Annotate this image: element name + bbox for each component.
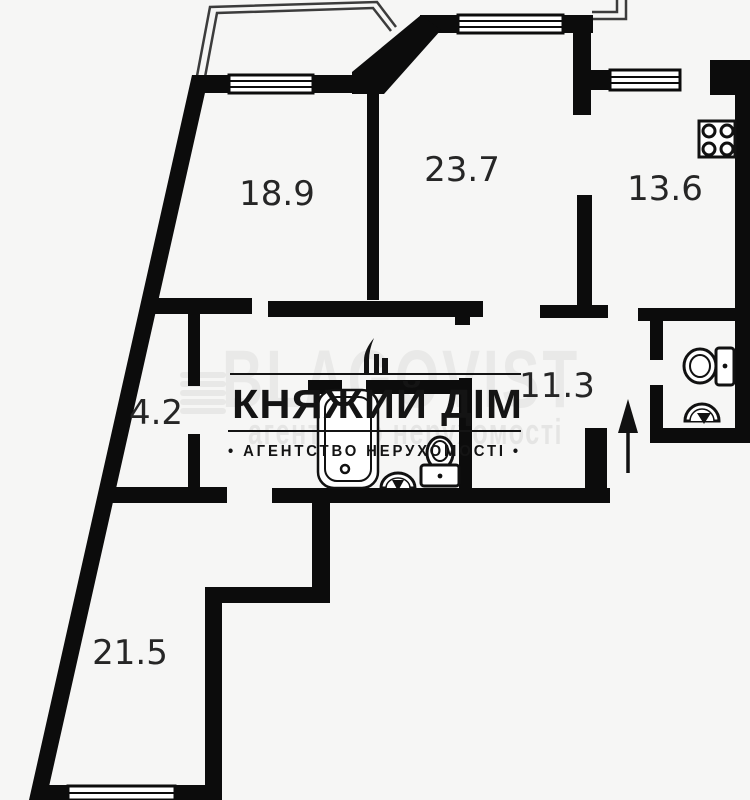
- wall-closet-bottom: [100, 487, 227, 503]
- room-label-4-2: 4.2: [129, 393, 183, 433]
- stove-icon: [699, 121, 735, 157]
- window-room237: [458, 15, 563, 33]
- tagline-text: • АГЕНТСТВО НЕРУХОМОСТІ •: [228, 443, 521, 460]
- floor-plan-page: BLAGOVIST агентство нерухомості: [0, 0, 750, 800]
- wall-wc-left-lower: [650, 385, 663, 428]
- wall-kitchen-divider-tbar: [540, 305, 608, 318]
- wall-hall-right: [585, 428, 607, 503]
- window-kitchen: [610, 70, 680, 90]
- wall-kitchen-divider-lower: [577, 195, 592, 305]
- wall-room-divider: [367, 90, 379, 300]
- room-label-11-3: 11.3: [519, 366, 595, 406]
- bathroom-sink-icon: [381, 473, 415, 491]
- window-room215: [68, 786, 175, 800]
- balcony-top-right-outer: [592, 0, 626, 19]
- wc-toilet-icon: [684, 348, 734, 385]
- wall-closet-right-upper: [188, 310, 200, 386]
- entrance-arrow-icon: [618, 399, 638, 473]
- wall-room215-right: [205, 590, 222, 800]
- wall-hall-top-stub: [455, 313, 470, 325]
- wc-sink-icon: [685, 404, 719, 424]
- wall-diagonal: [352, 15, 441, 94]
- room-label-13-6: 13.6: [627, 169, 703, 209]
- wall-step-horizontal: [205, 587, 330, 603]
- wall-kitchen-divider-upper: [573, 33, 591, 115]
- wall-top-right-corner: [710, 60, 750, 95]
- wall-hall-bottom: [272, 488, 610, 503]
- brand-text: КНЯЖИЙ ДІМ: [232, 381, 523, 427]
- wall-closet-right-lower: [188, 434, 200, 490]
- wall-hall-top-middle: [268, 301, 483, 317]
- room-label-23-7: 23.7: [424, 150, 500, 190]
- window-room189: [229, 75, 313, 93]
- blagovist-logo-stripes-icon: [180, 372, 226, 414]
- balcony-top-right-inner: [592, 0, 617, 12]
- wall-step-vertical: [312, 503, 330, 603]
- wall-right-outer: [735, 60, 750, 443]
- floor-plan: BLAGOVIST агентство нерухомості: [0, 0, 750, 800]
- room-label-21-5: 21.5: [92, 633, 168, 673]
- wall-wc-left-upper: [650, 318, 663, 360]
- wall-left-slanted: [29, 75, 209, 800]
- room-label-18-9: 18.9: [239, 174, 315, 214]
